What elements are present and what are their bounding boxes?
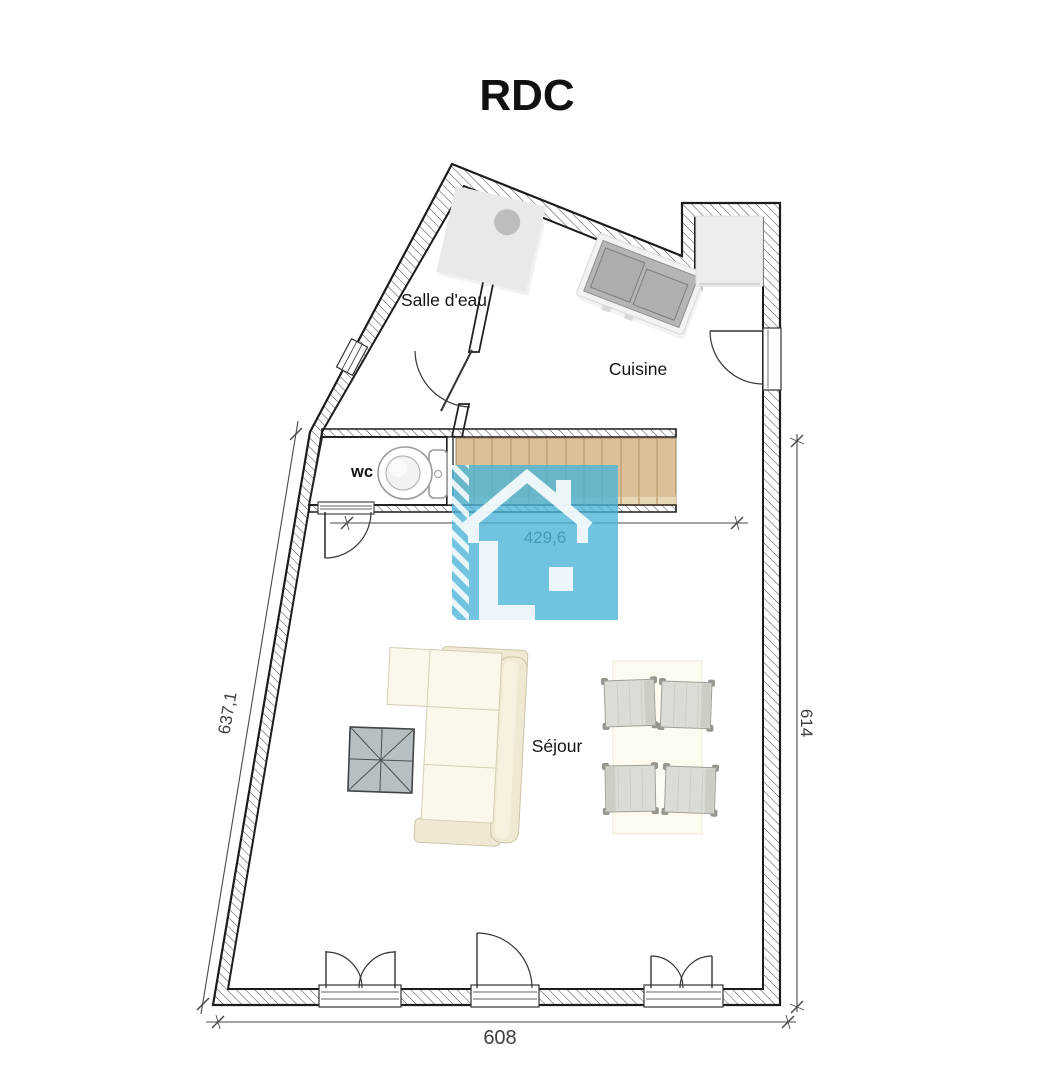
page-title: RDC <box>479 71 574 120</box>
room-label-wc: wc <box>350 463 373 481</box>
wall-above-stairs <box>322 429 676 437</box>
dimension-right-wall: 614 <box>790 434 816 1013</box>
watermark-house-logo <box>452 465 618 623</box>
sofa-seat <box>421 650 502 824</box>
toilet-flush-button <box>435 471 442 478</box>
dining-chair <box>661 763 719 817</box>
fridge <box>696 216 763 291</box>
watermark-chimney <box>556 480 571 506</box>
dining-chair <box>601 676 659 730</box>
watermark-striped-band <box>452 465 469 620</box>
toilet <box>378 447 447 499</box>
dim-right-wall-value: 614 <box>797 709 816 737</box>
room-label-bathroom: Salle d'eau <box>401 290 487 310</box>
dim-bottom-wall-value: 608 <box>483 1027 516 1049</box>
dining-chair <box>657 678 715 732</box>
room-label-kitchen: Cuisine <box>609 359 667 379</box>
watermark-square-dot <box>549 567 573 591</box>
room-label-living: Séjour <box>532 736 583 756</box>
dim-left-wall-value: 637,1 <box>215 690 241 735</box>
dimension-bottom-wall: 608 <box>206 1015 796 1049</box>
coffee-table <box>348 727 414 793</box>
dining-set <box>601 661 719 834</box>
dining-chair <box>602 762 659 815</box>
floor-plan-page: RDC <box>0 0 1057 1080</box>
floor-plan-drawing: RDC <box>0 0 1057 1080</box>
